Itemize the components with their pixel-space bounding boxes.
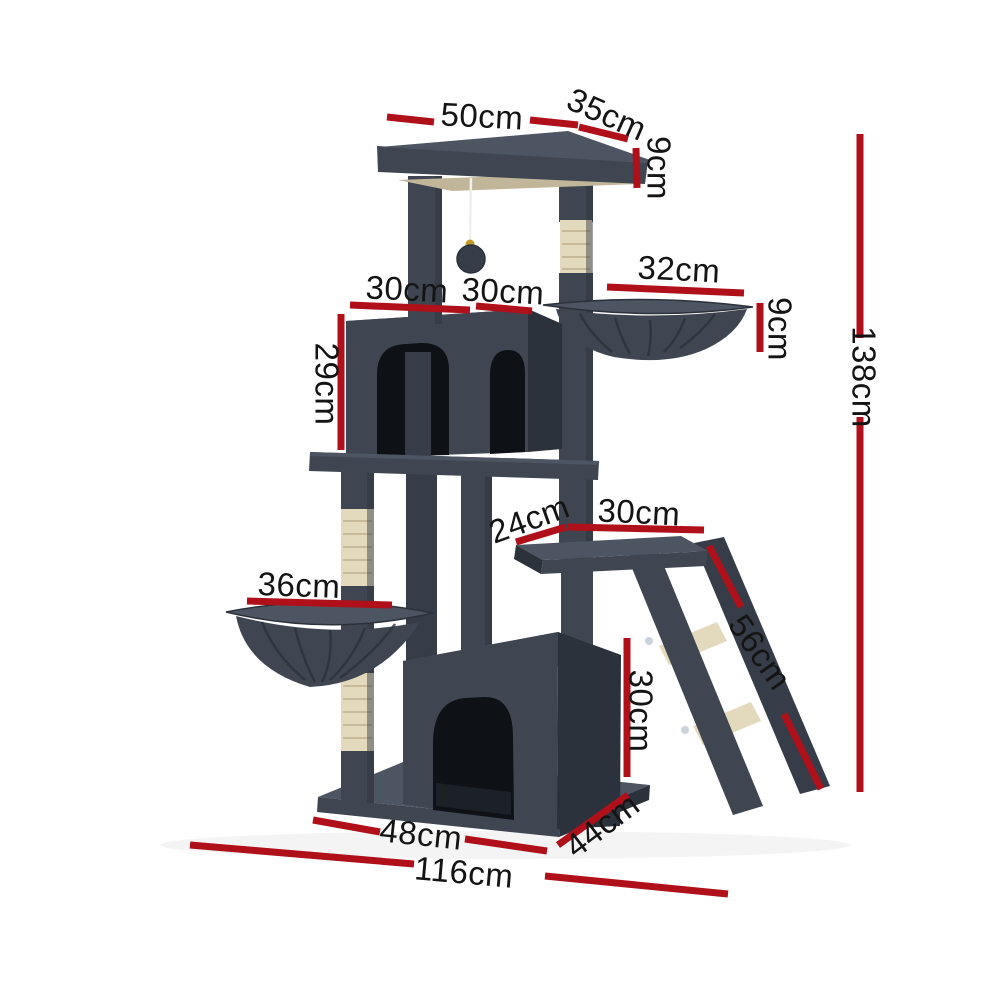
dim-line-top-width (387, 117, 434, 122)
dim-label-overall-width: 116cm (413, 851, 515, 893)
dim-label-top-width: 50cm (440, 97, 524, 134)
dim-label-top-thickness: 9cm (643, 136, 676, 200)
ladder-screw (681, 726, 689, 734)
lower-condo (403, 632, 621, 829)
dim-label-lower-hammock-width: 36cm (257, 567, 341, 603)
dim-label-perch-width: 30cm (597, 493, 681, 530)
dim-line-base-width (313, 820, 380, 832)
dim-line-hammock-width (607, 287, 744, 293)
toy-pompom-ball (457, 245, 485, 273)
dim-label-lower-condo-height: 30cm (625, 670, 658, 753)
dim-label-hammock-depth: 9cm (764, 297, 797, 361)
step-platform (514, 536, 708, 574)
dim-label-hammock-width: 32cm (637, 250, 721, 287)
hanging-toy (457, 178, 485, 273)
upper-condo (346, 309, 562, 458)
ladder-screw (645, 637, 653, 645)
dim-label-base-width: 48cm (378, 813, 464, 854)
center-support-post (461, 468, 492, 655)
dim-line-top-width (530, 120, 578, 125)
product-dimension-diagram: 50cm 35cm 9cm 30cm 30cm 29cm 32cm 9cm 13… (0, 0, 1000, 1000)
dim-line-overall-width (545, 876, 728, 894)
upper-condo-inner-post (405, 352, 431, 456)
cat-tree-illustration (0, 0, 1000, 1000)
dim-label-condo-width-left: 30cm (365, 270, 449, 307)
toy-string (470, 178, 471, 240)
lower-hammock (226, 602, 433, 687)
upper-condo-side-arch-opening (490, 350, 525, 454)
upper-condo-side (528, 309, 562, 452)
dim-line-top-thickness (636, 148, 637, 188)
dim-label-condo-height: 29cm (311, 343, 344, 426)
dim-label-condo-width-right: 30cm (461, 272, 545, 309)
dim-label-total-height: 138cm (848, 326, 881, 428)
top-platform (377, 131, 650, 191)
